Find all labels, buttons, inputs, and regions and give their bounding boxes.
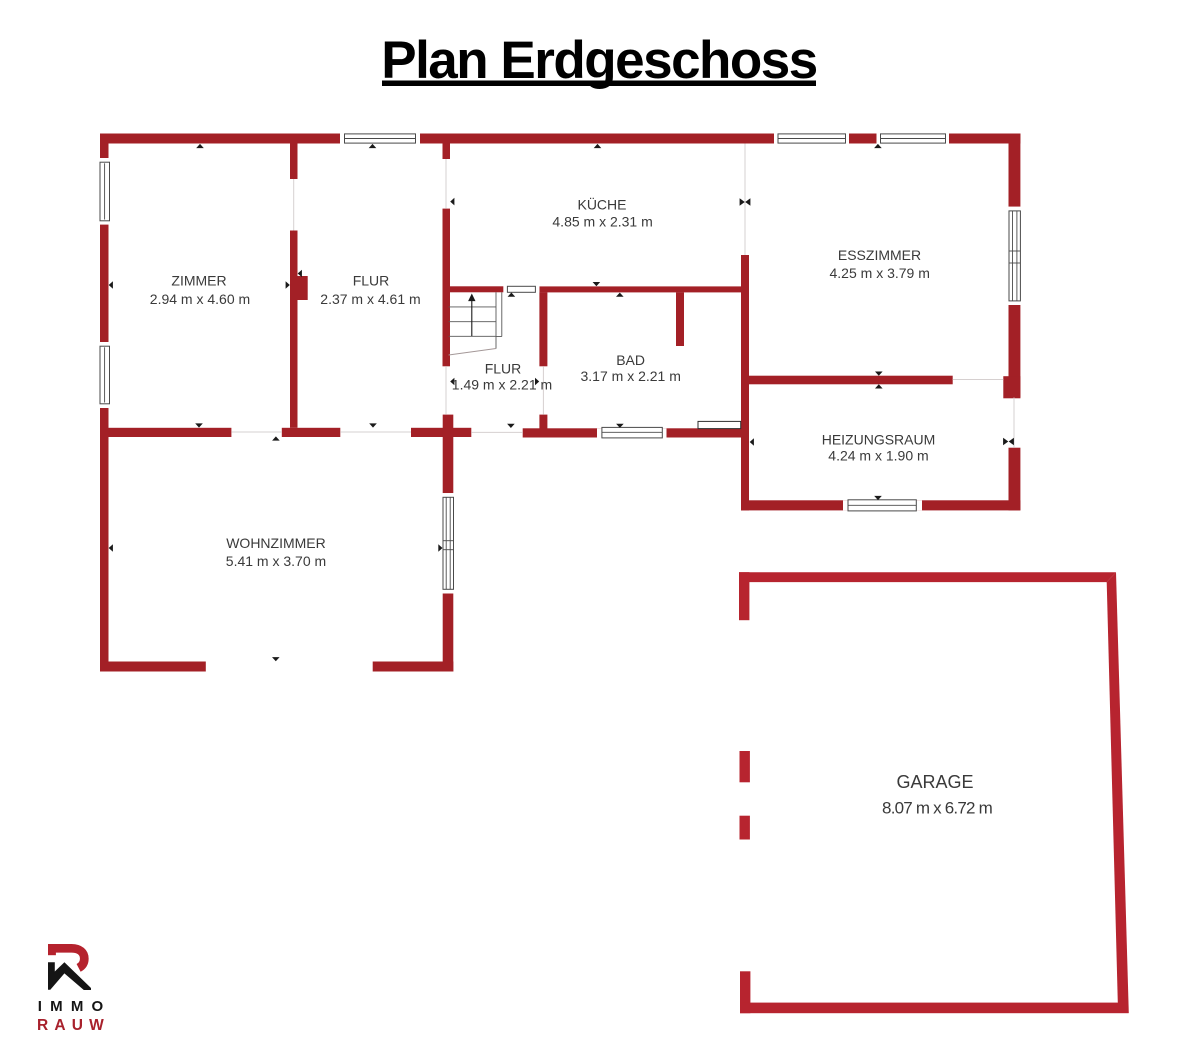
svg-text:GARAGE: GARAGE [896,772,973,792]
svg-text:2.37 m x 4.61 m: 2.37 m x 4.61 m [320,291,420,307]
svg-text:KÜCHE: KÜCHE [577,196,626,213]
svg-text:4.24 m x 1.90 m: 4.24 m x 1.90 m [828,448,928,464]
svg-text:3.17 m x 2.21 m: 3.17 m x 2.21 m [581,368,681,384]
svg-text:BAD: BAD [616,352,645,368]
svg-text:IMMO: IMMO [38,998,112,1015]
svg-text:WOHNZIMMER: WOHNZIMMER [226,535,326,551]
svg-text:FLUR: FLUR [485,361,522,377]
svg-text:8.07 m x 6.72 m: 8.07 m x 6.72 m [882,799,993,818]
svg-text:4.85 m x 2.31 m: 4.85 m x 2.31 m [552,213,652,229]
svg-text:ESSZIMMER: ESSZIMMER [838,247,921,263]
svg-text:2.94 m x 4.60 m: 2.94 m x 4.60 m [150,291,250,307]
svg-text:RAUW: RAUW [37,1017,110,1034]
svg-text:5.41 m x 3.70 m: 5.41 m x 3.70 m [226,553,326,569]
svg-text:4.25 m x 3.79 m: 4.25 m x 3.79 m [830,265,930,281]
svg-text:HEIZUNGSRAUM: HEIZUNGSRAUM [822,432,936,448]
svg-text:1.49 m x 2.21 m: 1.49 m x 2.21 m [452,377,552,393]
svg-text:ZIMMER: ZIMMER [171,273,226,289]
svg-text:FLUR: FLUR [353,273,390,289]
